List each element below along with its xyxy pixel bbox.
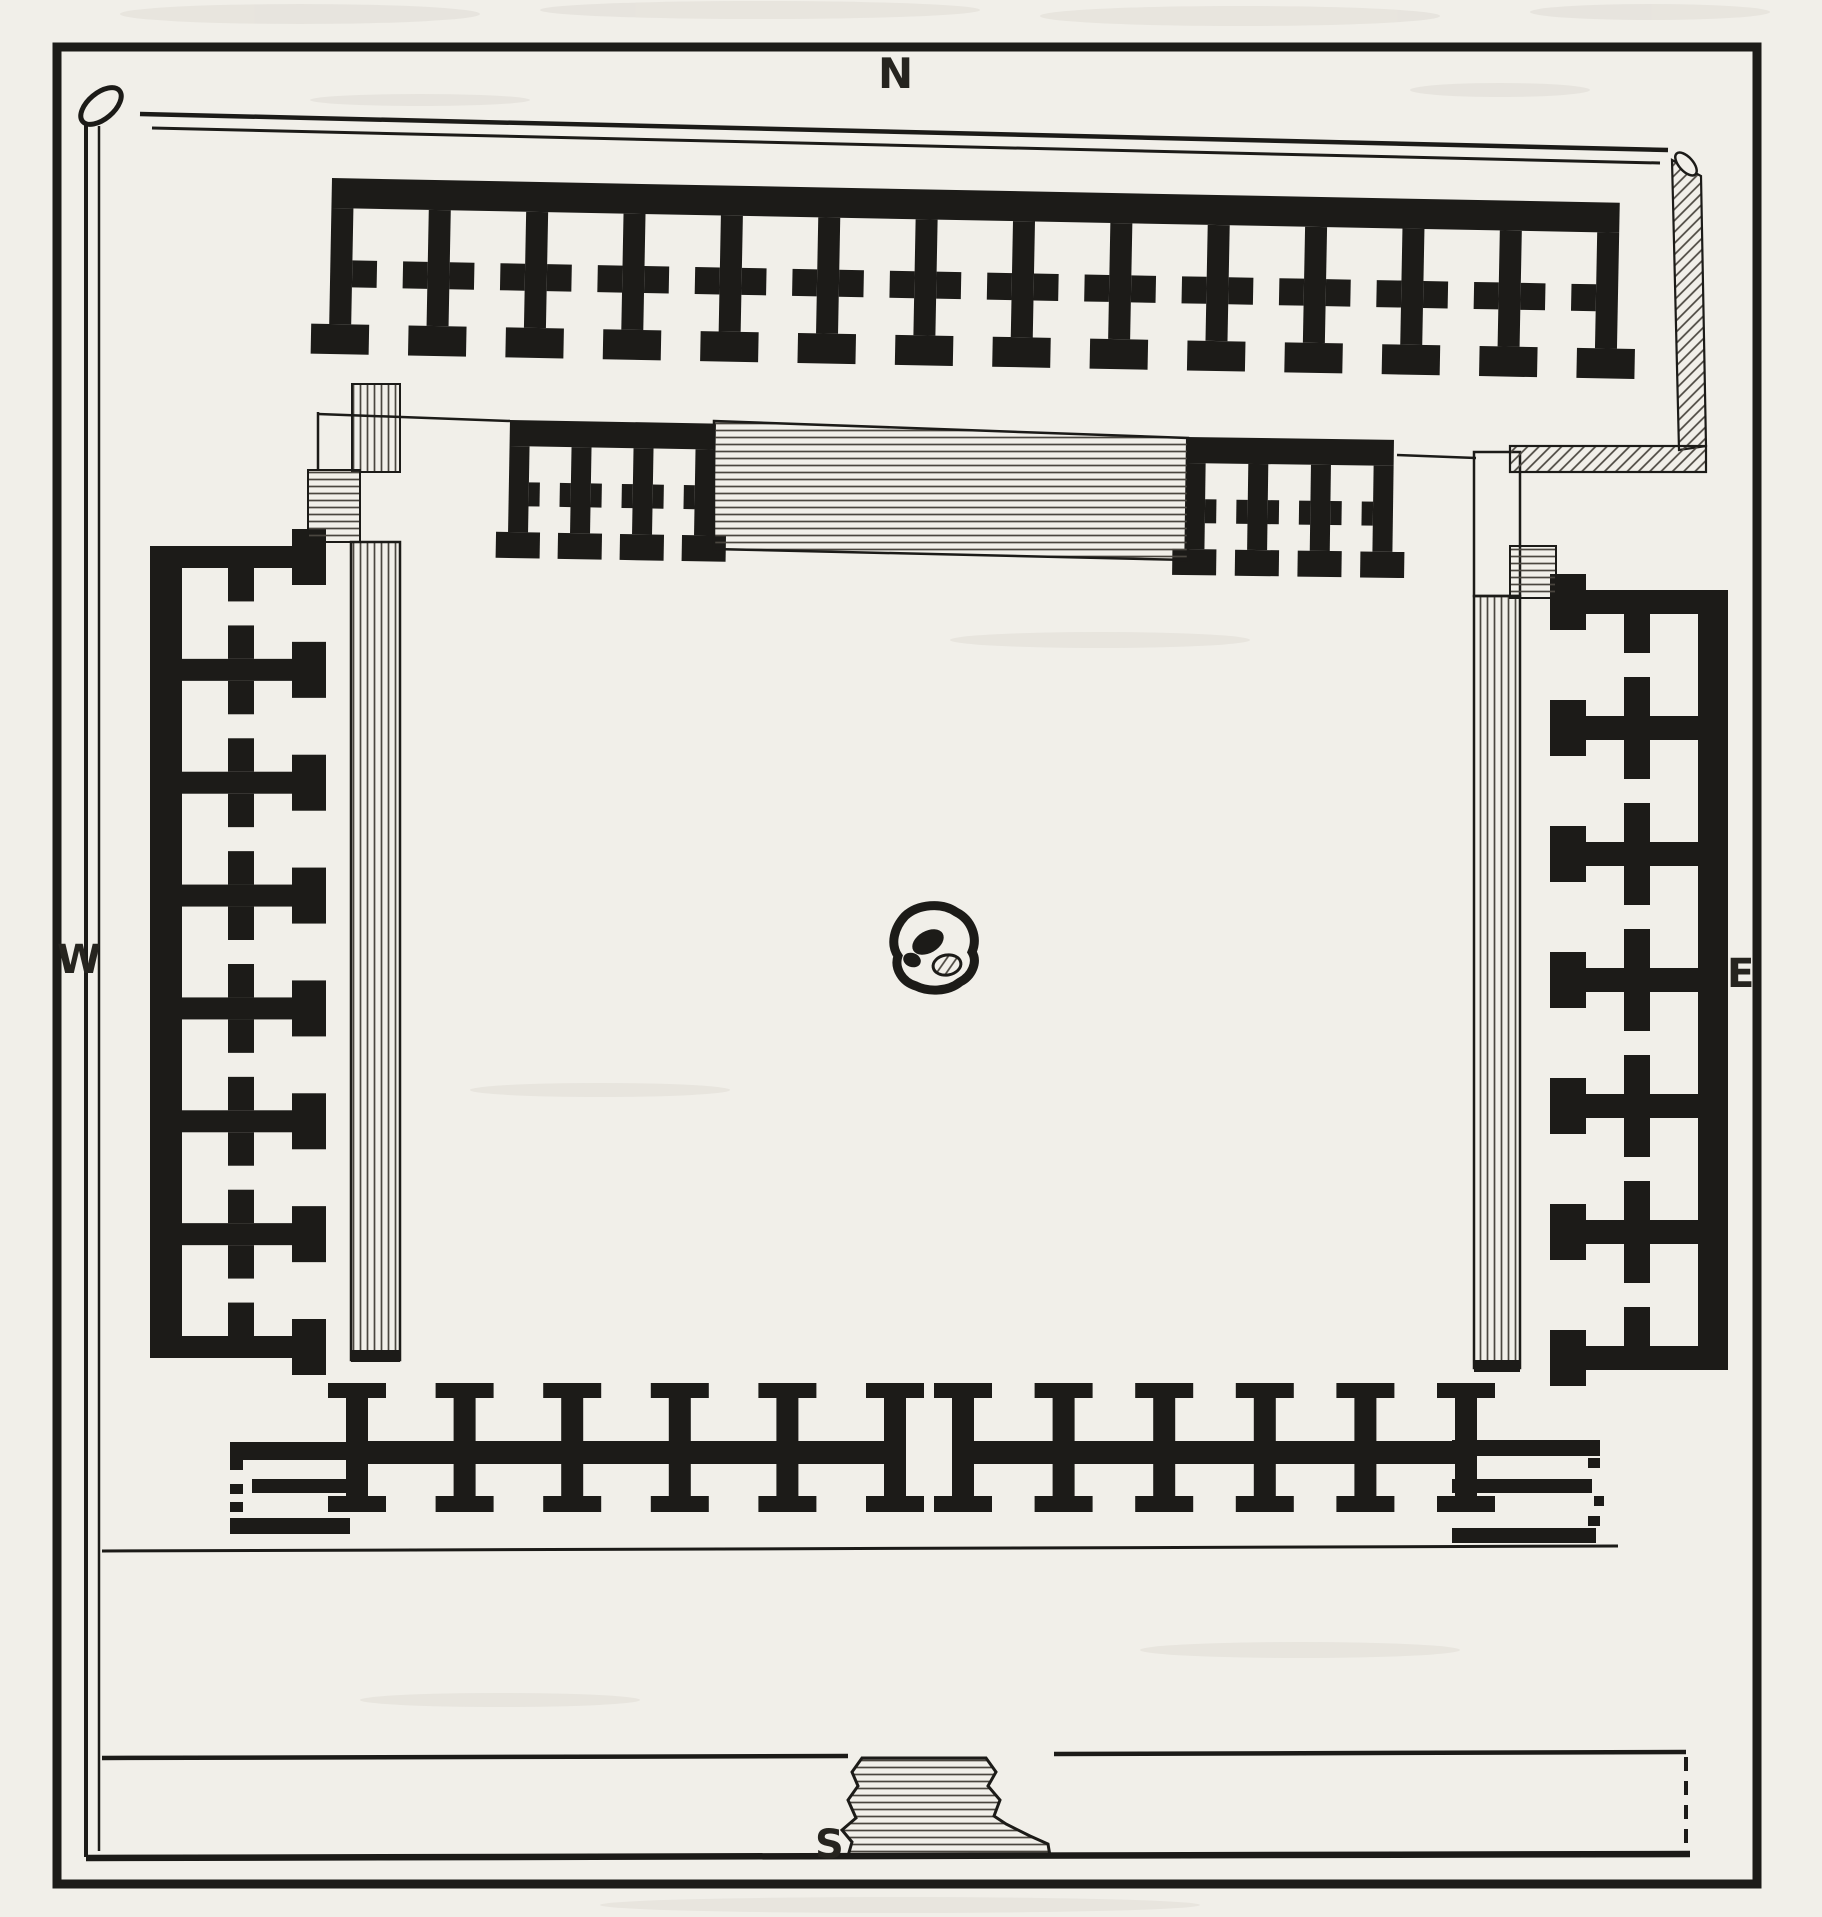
enclosure-corner-horizontal [1510, 446, 1706, 472]
compass-label-west: W [57, 937, 101, 983]
enclosure-corner-vertical [1672, 160, 1706, 450]
compass-label-east: E [1727, 951, 1754, 997]
compass-label-south: S [815, 1822, 844, 1868]
courtyard-plan-figure: N W E S [0, 0, 1822, 1917]
west-wall-stub [352, 384, 400, 472]
west-platform-square [308, 470, 360, 542]
west-veranda-strip [351, 542, 400, 1360]
enclosure-line [102, 1756, 848, 1758]
enclosure-line [1054, 1752, 1686, 1754]
scanned-figure-page: N W E S [0, 0, 1822, 1917]
enclosure-line [86, 1854, 1690, 1858]
compass-label-north: N [878, 49, 913, 98]
east-platform-square [1510, 546, 1556, 598]
north-inner-hatch-band [714, 421, 1188, 560]
east-veranda-strip [1474, 596, 1520, 1368]
